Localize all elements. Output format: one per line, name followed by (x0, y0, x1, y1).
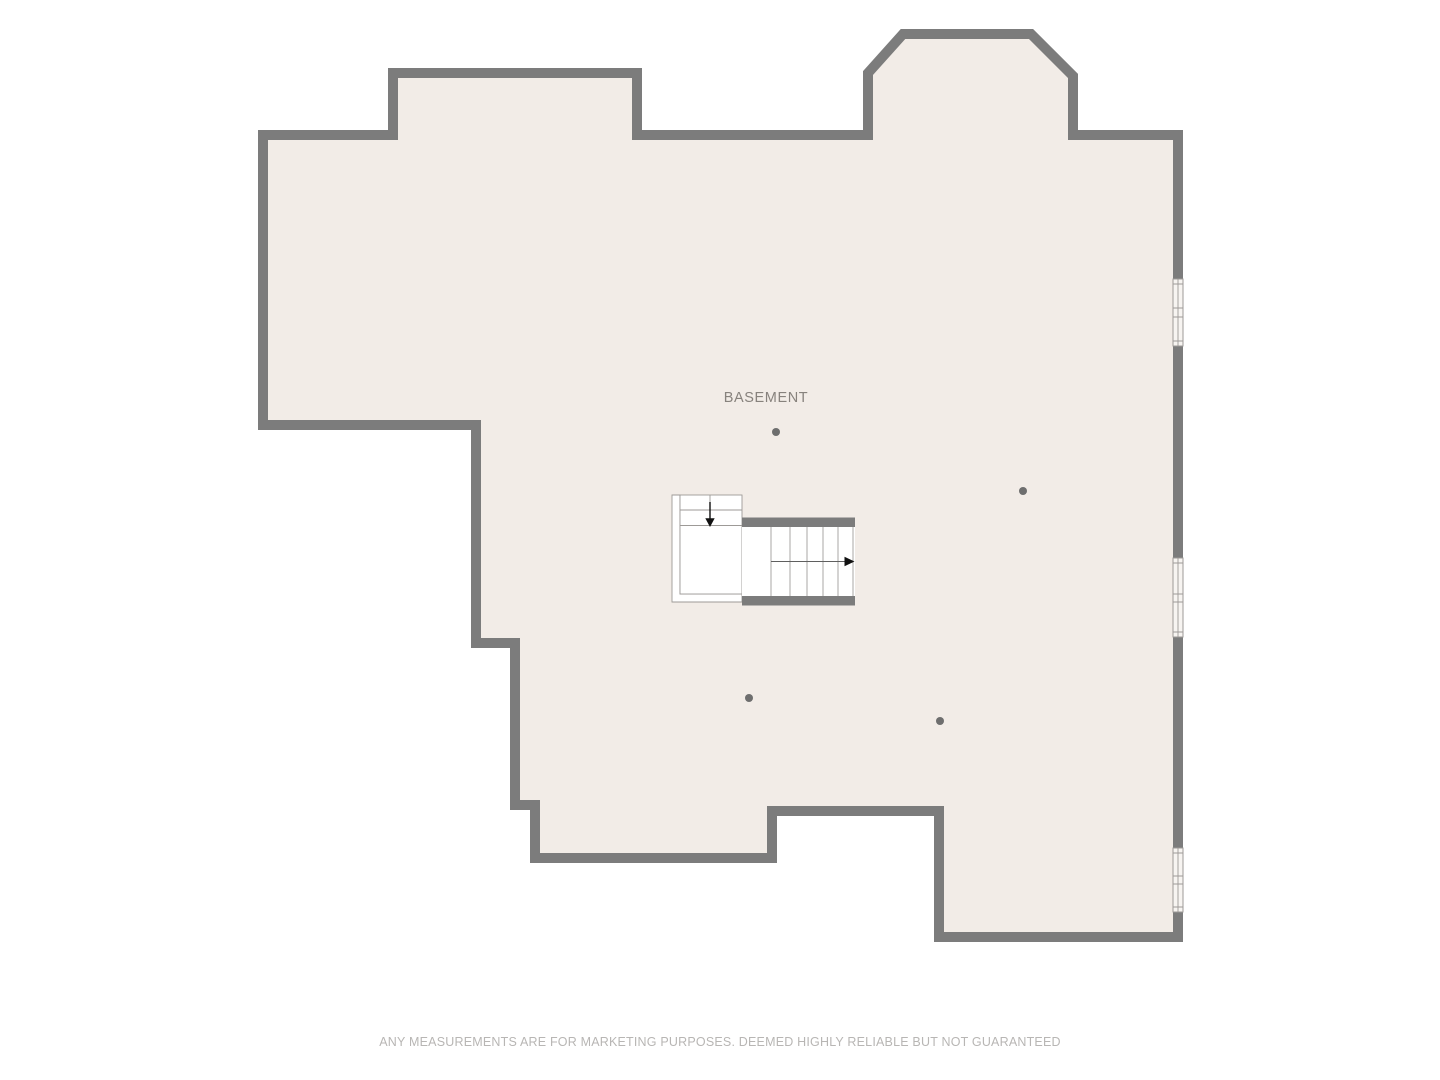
support-column-dot (936, 717, 944, 725)
disclaimer-text: ANY MEASUREMENTS ARE FOR MARKETING PURPO… (0, 1035, 1440, 1049)
window-icon (1173, 279, 1183, 346)
basement-outline (263, 34, 1178, 937)
window-icon (1173, 848, 1183, 912)
support-column-dot (772, 428, 780, 436)
support-column-dot (1019, 487, 1027, 495)
floorplan-svg: BASEMENT (0, 0, 1440, 1080)
window-icon (1173, 558, 1183, 637)
room-label: BASEMENT (724, 390, 809, 406)
stair-wall-top (742, 518, 855, 528)
floorplan-stage: BASEMENT (0, 0, 1440, 1080)
support-column-dot (745, 694, 753, 702)
stair-wall-bottom (742, 596, 855, 606)
